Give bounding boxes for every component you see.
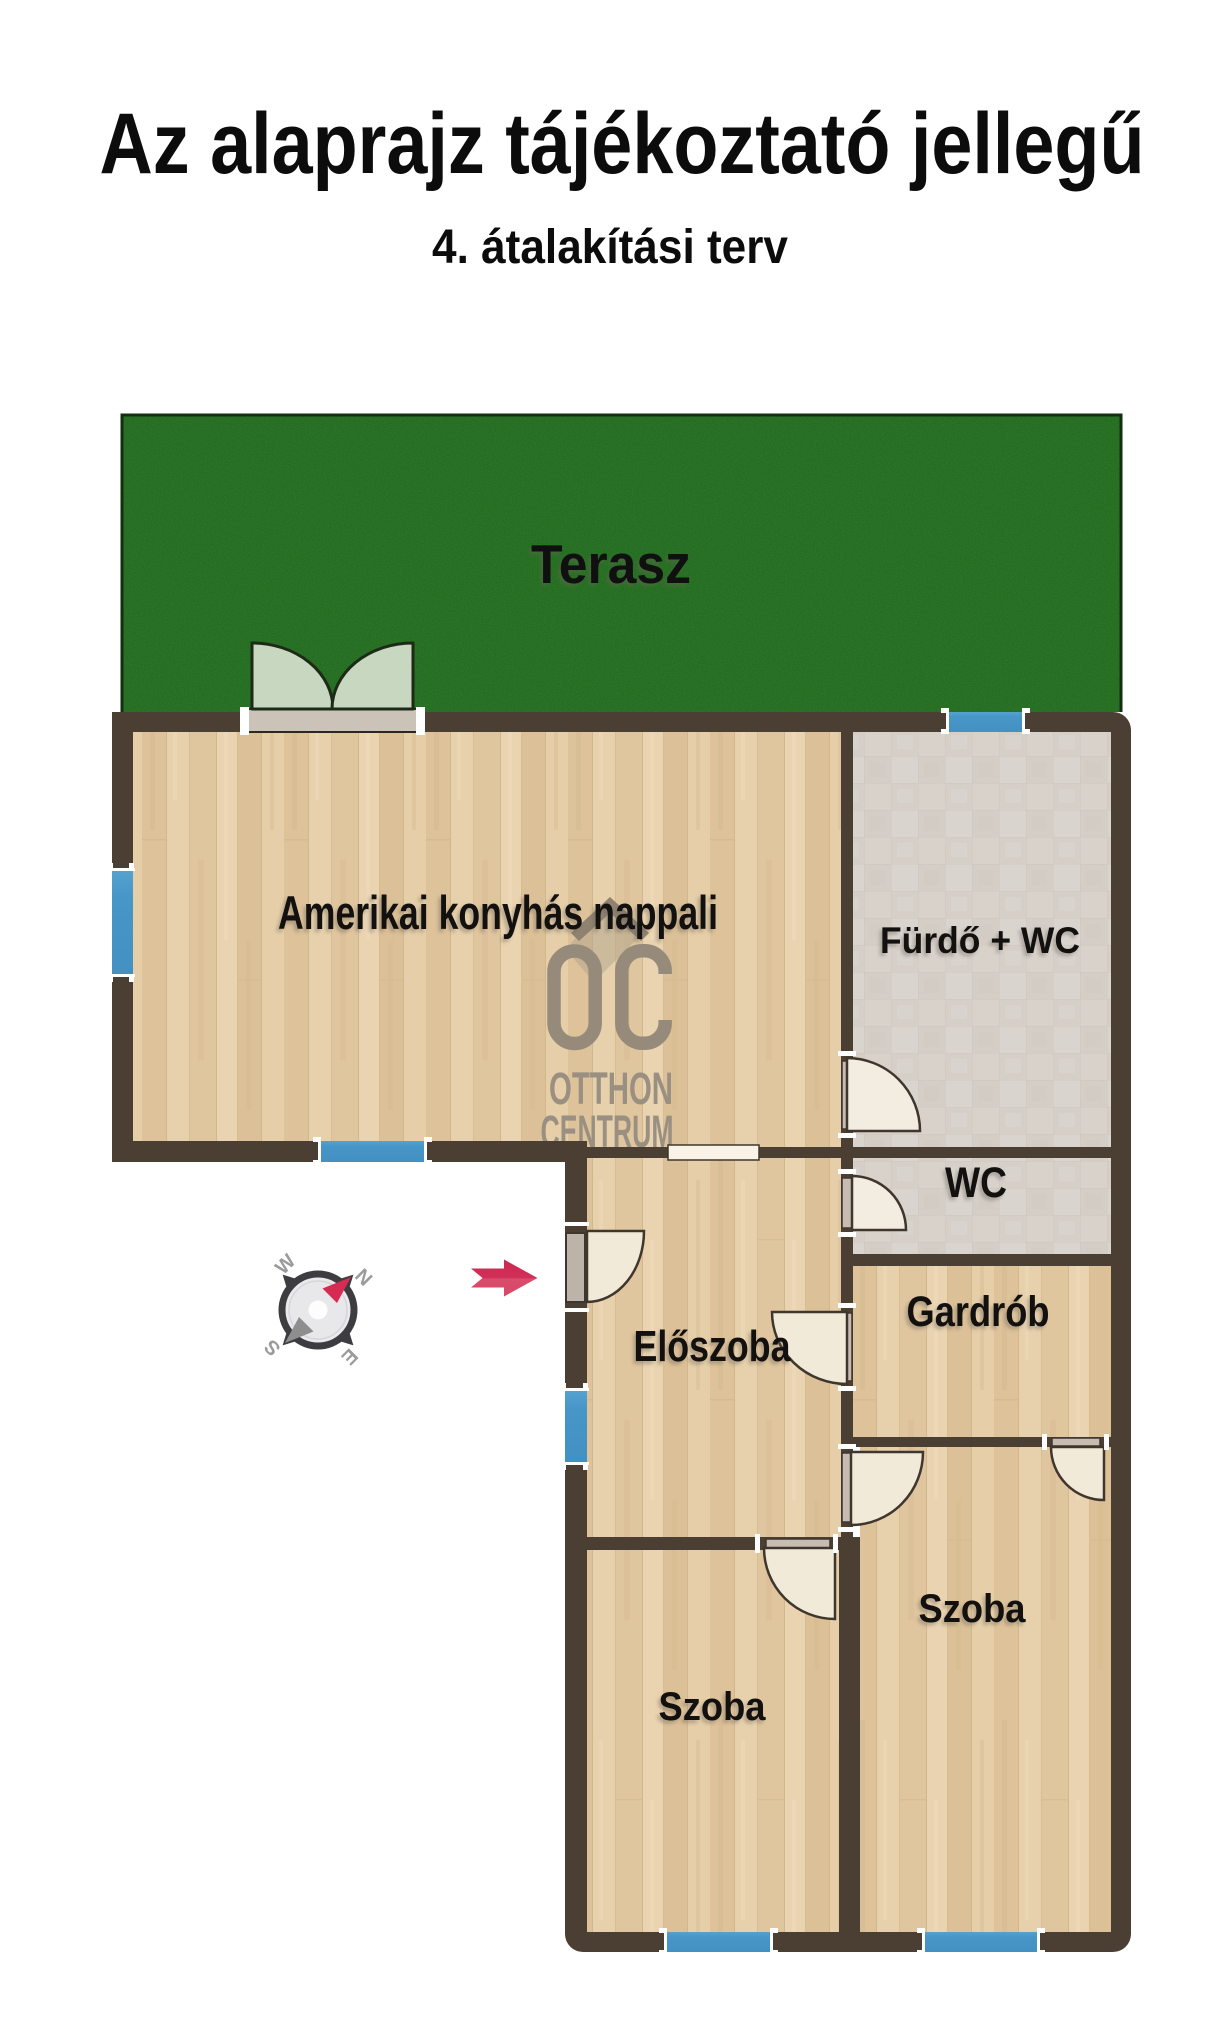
svg-text:Amerikai konyhás nappali: Amerikai konyhás nappali bbox=[278, 886, 718, 939]
svg-text:Gardrób: Gardrób bbox=[907, 1288, 1050, 1336]
svg-text:4. átalakítási terv: 4. átalakítási terv bbox=[432, 221, 788, 274]
svg-text:WC: WC bbox=[945, 1159, 1007, 1207]
svg-text:Szoba: Szoba bbox=[919, 1587, 1027, 1631]
svg-text:Terasz: Terasz bbox=[531, 533, 691, 595]
svg-text:Szoba: Szoba bbox=[659, 1685, 767, 1729]
svg-text:Fürdő + WC: Fürdő + WC bbox=[880, 920, 1080, 961]
svg-text:Előszoba: Előszoba bbox=[634, 1322, 791, 1371]
svg-text:Az alaprajz tájékoztató jelleg: Az alaprajz tájékoztató jellegű bbox=[100, 96, 1145, 192]
